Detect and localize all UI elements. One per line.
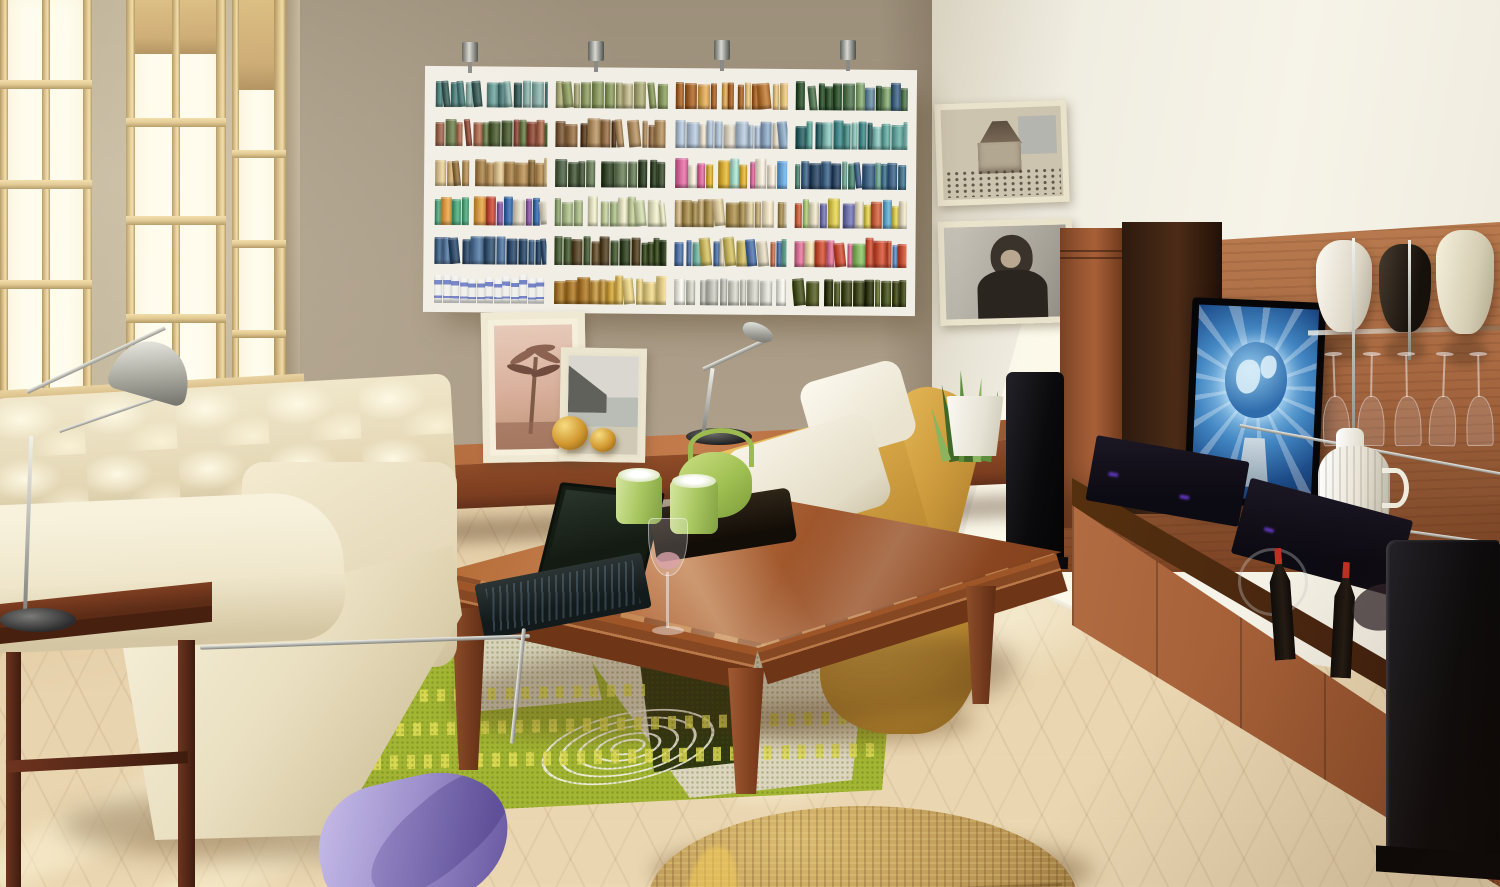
book-spine xyxy=(537,120,545,147)
book-spine xyxy=(443,275,451,304)
book-spine xyxy=(554,281,565,304)
book-spine xyxy=(615,119,625,148)
book-spine xyxy=(792,278,806,306)
book-spine xyxy=(628,162,638,187)
cabinet-groove xyxy=(1060,250,1124,252)
book-spine xyxy=(795,203,803,228)
book-spine xyxy=(706,164,714,188)
book-spine xyxy=(574,83,580,108)
book-spine xyxy=(581,82,592,108)
bookshelf-cell xyxy=(794,78,908,111)
tower-speaker-right xyxy=(1386,540,1500,870)
book-spine xyxy=(700,280,706,305)
bookshelf xyxy=(423,66,917,316)
book-spine xyxy=(601,161,614,187)
bookshelf-cell xyxy=(433,153,547,186)
book-spine xyxy=(641,242,647,265)
book-spine xyxy=(586,160,596,187)
book-spine xyxy=(513,120,519,147)
photo-sky xyxy=(1018,115,1058,154)
book-spine xyxy=(898,165,906,190)
bookshelf-cell xyxy=(672,273,786,306)
book-spine xyxy=(794,241,804,267)
book-spine xyxy=(460,278,468,304)
book-spine xyxy=(760,281,773,306)
photo-crowd xyxy=(945,167,1061,198)
bookshelf-cell xyxy=(673,155,787,188)
cream-vase xyxy=(1436,230,1494,334)
gold-apple-ornament xyxy=(590,428,616,452)
book-spine xyxy=(518,238,528,264)
book-spine xyxy=(621,278,635,305)
book-spine xyxy=(728,281,740,306)
book-spine xyxy=(535,163,544,186)
book-spine xyxy=(728,83,734,110)
book-spine xyxy=(815,122,822,150)
book-spine xyxy=(600,236,610,265)
book-spine xyxy=(718,161,730,188)
book-spine xyxy=(452,160,461,185)
book-spine xyxy=(457,123,463,147)
chrome-rod xyxy=(1408,240,1411,360)
gold-apple-ornament xyxy=(552,416,588,450)
book-spine xyxy=(633,82,645,109)
book-spine xyxy=(675,120,686,148)
book-spine xyxy=(520,120,527,147)
book-spine xyxy=(867,122,872,150)
book-spine xyxy=(623,84,633,109)
bookshelf-cell xyxy=(552,272,666,305)
book-spine xyxy=(619,239,630,266)
book-spine xyxy=(855,202,864,228)
picture-light-icon xyxy=(462,42,478,62)
book-spine xyxy=(904,122,908,151)
book-spine xyxy=(776,241,781,267)
book-spine xyxy=(858,122,867,150)
book-spine xyxy=(435,160,447,185)
book-spine xyxy=(627,120,642,148)
book-spine xyxy=(515,163,528,186)
bookshelf-cell xyxy=(793,156,907,189)
book-spine xyxy=(657,162,665,187)
book-spine xyxy=(566,124,578,148)
book-spine xyxy=(474,197,486,225)
book-spine xyxy=(864,280,874,307)
book-spine xyxy=(864,204,870,228)
book-spine xyxy=(591,242,599,266)
book-spine xyxy=(448,237,460,264)
book-spine xyxy=(739,202,745,228)
bookshelf-cell xyxy=(674,77,788,110)
book-spine xyxy=(525,199,532,225)
book-spine xyxy=(578,161,585,187)
bookshelf-cell xyxy=(792,274,906,307)
book-spine xyxy=(631,238,641,265)
book-spine xyxy=(722,82,728,109)
bookshelf-cell xyxy=(672,234,786,267)
book-spine xyxy=(614,161,627,187)
dark-vase xyxy=(1379,244,1431,332)
book-spine xyxy=(767,165,776,189)
bookshelf-cell xyxy=(673,116,787,149)
book-spine xyxy=(554,236,563,265)
book-spine xyxy=(456,81,465,107)
book-spine xyxy=(706,120,713,148)
desk-lamp-base xyxy=(0,608,76,632)
book-spine xyxy=(809,163,821,189)
globe-landmass xyxy=(1235,359,1260,394)
book-spine xyxy=(676,82,684,109)
book-spine xyxy=(706,279,718,305)
book-spine xyxy=(555,121,565,147)
book-spine xyxy=(684,83,697,109)
book-spine xyxy=(610,201,618,226)
book-spine xyxy=(643,281,655,305)
book-spine xyxy=(445,119,456,147)
hanging-wine-glass xyxy=(1428,352,1457,453)
book-spine xyxy=(818,83,824,110)
book-spine xyxy=(674,279,685,305)
book-spine xyxy=(528,159,535,186)
book-spine xyxy=(804,241,814,267)
book-spine xyxy=(604,82,615,108)
book-spine xyxy=(782,239,787,267)
book-spine xyxy=(555,159,567,186)
book-spine xyxy=(723,125,735,149)
book-spine xyxy=(647,82,657,109)
picture-light-icon xyxy=(588,41,604,61)
book-spine xyxy=(853,244,866,268)
book-spine xyxy=(571,239,582,265)
window-frame-shadow xyxy=(286,0,302,430)
book-spine xyxy=(814,240,826,267)
sepia-pavilion-photo xyxy=(934,100,1069,207)
book-spine xyxy=(656,276,666,305)
book-spine xyxy=(892,206,899,229)
book-spine xyxy=(756,240,770,266)
book-spine xyxy=(655,120,666,148)
book-spine xyxy=(744,83,751,110)
book-spine xyxy=(477,279,485,303)
book-spine xyxy=(577,277,590,304)
book-spine xyxy=(606,280,615,305)
rose-wine xyxy=(656,552,680,569)
book-spine xyxy=(886,241,891,268)
book-spine xyxy=(833,242,847,267)
book-spine xyxy=(522,81,531,108)
book-spine xyxy=(555,198,561,226)
book-spine xyxy=(842,162,848,189)
book-spine xyxy=(821,162,831,189)
book-spine xyxy=(536,278,544,304)
book-spine xyxy=(823,122,833,150)
book-spine xyxy=(590,280,598,304)
book-spine xyxy=(486,163,494,186)
book-spine xyxy=(583,236,591,265)
book-spine xyxy=(762,200,774,227)
book-spine xyxy=(601,201,609,226)
book-spine xyxy=(831,163,841,189)
book-spine xyxy=(581,123,588,147)
book-spine xyxy=(712,199,726,227)
book-spine xyxy=(502,277,510,304)
book-spine xyxy=(601,120,611,148)
plant-pot xyxy=(944,396,1006,456)
book-spine xyxy=(697,84,710,110)
book-spine xyxy=(891,82,901,111)
book-spine xyxy=(563,237,571,265)
book-spine xyxy=(726,202,739,227)
book-spine xyxy=(871,202,882,228)
bookshelf-cell xyxy=(553,193,667,226)
book-spine xyxy=(636,278,644,305)
book-spine xyxy=(899,201,907,229)
book-spine xyxy=(851,122,857,150)
book-spine xyxy=(713,242,719,267)
cabinet-groove xyxy=(1060,257,1124,259)
book-spine xyxy=(833,83,842,110)
book-spine xyxy=(882,199,891,228)
book-spine xyxy=(506,239,518,265)
bookshelf-cell xyxy=(793,117,907,150)
book-spine xyxy=(881,164,887,190)
green-mug xyxy=(616,474,662,524)
book-spine xyxy=(875,280,881,307)
book-spine xyxy=(722,237,735,267)
book-spine xyxy=(746,202,754,227)
book-spine xyxy=(833,121,844,150)
bookshelf-cell xyxy=(432,232,546,265)
book-spine xyxy=(501,121,513,147)
book-spine xyxy=(451,276,459,303)
book-spine xyxy=(866,238,873,268)
book-spine xyxy=(659,203,667,227)
book-spine xyxy=(642,121,647,148)
book-spine xyxy=(795,164,800,189)
picture-light-icon xyxy=(840,40,856,60)
book-spine xyxy=(618,198,628,226)
book-spine xyxy=(697,163,705,188)
book-spine xyxy=(473,122,483,146)
book-spine xyxy=(545,81,548,108)
book-spine xyxy=(599,280,606,305)
bookshelf-cell xyxy=(433,114,547,147)
book-spine xyxy=(843,203,855,228)
book-spine xyxy=(873,241,886,268)
book-spine xyxy=(898,244,907,268)
bookshelf-cell xyxy=(433,192,547,225)
book-spine xyxy=(698,199,704,227)
book-spine xyxy=(674,242,683,266)
book-spine xyxy=(881,281,892,307)
book-spine xyxy=(720,278,728,305)
book-spine xyxy=(682,200,692,227)
book-spine xyxy=(740,279,747,305)
book-spine xyxy=(730,159,739,188)
book-spine xyxy=(648,124,654,148)
bookshelf-cell xyxy=(432,271,546,304)
book-spine xyxy=(435,122,444,146)
book-spine xyxy=(654,237,660,265)
book-spine xyxy=(486,196,496,225)
book-spine xyxy=(464,119,473,146)
book-spine xyxy=(875,86,881,111)
book-spine xyxy=(901,88,907,111)
book-spine xyxy=(513,199,525,225)
book-spine xyxy=(616,82,623,109)
book-spine xyxy=(475,160,486,186)
jug-handle xyxy=(1382,468,1409,508)
book-spine xyxy=(834,281,841,306)
book-spine xyxy=(795,126,806,149)
book-spine xyxy=(463,239,471,264)
book-spine xyxy=(736,121,748,149)
book-spine xyxy=(873,127,882,151)
book-spine xyxy=(461,197,469,225)
book-spine xyxy=(494,279,502,303)
book-spine xyxy=(435,198,441,224)
book-spine xyxy=(692,201,698,227)
book-spine xyxy=(545,123,548,148)
hanging-wine-glass xyxy=(1465,352,1493,452)
book-spine xyxy=(538,201,547,225)
book-spine xyxy=(882,123,891,150)
book-spine xyxy=(441,197,452,225)
book-spine xyxy=(675,201,682,227)
book-spine xyxy=(484,237,496,265)
book-spine xyxy=(485,277,493,303)
book-spine xyxy=(841,280,853,307)
book-spine xyxy=(486,83,497,108)
book-spine xyxy=(828,199,841,229)
book-spine xyxy=(844,123,851,150)
book-spine xyxy=(588,197,598,226)
book-spine xyxy=(544,158,547,187)
book-spine xyxy=(842,83,855,110)
book-spine xyxy=(757,82,772,110)
book-spine xyxy=(754,126,760,149)
bookshelf-cell xyxy=(553,154,667,187)
book-spine xyxy=(801,161,809,189)
book-spine xyxy=(777,161,788,189)
book-spine xyxy=(796,81,805,110)
book-spine xyxy=(776,279,786,306)
book-spine xyxy=(686,122,699,148)
book-spine xyxy=(462,160,469,186)
book-spine xyxy=(561,202,573,226)
book-spine xyxy=(761,122,772,150)
book-spine xyxy=(824,279,834,306)
book-spine xyxy=(434,237,442,264)
book-spine xyxy=(638,160,647,188)
book-spine xyxy=(568,162,578,187)
book-spine xyxy=(887,163,897,189)
hanging-wine-glass xyxy=(1393,352,1421,452)
book-spine xyxy=(650,160,657,188)
book-spine xyxy=(633,200,647,227)
book-spine xyxy=(847,244,852,268)
book-spine xyxy=(748,124,753,149)
wine-glass-foot xyxy=(652,626,684,635)
book-spine xyxy=(452,199,461,224)
book-spine xyxy=(503,196,512,225)
bookshelf-cell xyxy=(673,195,787,228)
book-spine xyxy=(468,279,476,303)
book-spine xyxy=(803,199,809,228)
book-spine xyxy=(561,81,573,108)
book-spine xyxy=(875,163,881,189)
book-spine xyxy=(496,237,506,265)
book-spine xyxy=(658,84,668,109)
book-spine xyxy=(891,125,903,150)
book-spine xyxy=(471,236,484,264)
book-spine xyxy=(519,274,527,304)
book-spine xyxy=(610,241,619,266)
book-spine xyxy=(865,88,875,111)
book-spine xyxy=(714,122,723,149)
book-spine xyxy=(892,245,897,268)
book-spine xyxy=(750,161,755,188)
book-spine xyxy=(504,162,515,186)
book-spine xyxy=(862,163,875,189)
book-spine xyxy=(899,280,906,307)
book-spine xyxy=(853,280,864,307)
book-spine xyxy=(565,280,577,304)
book-spine xyxy=(770,242,776,267)
window-1 xyxy=(0,0,92,420)
book-spine xyxy=(648,242,654,266)
book-spine xyxy=(514,82,522,107)
rattan-pouf xyxy=(648,806,1078,887)
book-spine xyxy=(855,82,864,111)
book-spine xyxy=(747,280,760,306)
book-spine xyxy=(739,164,747,188)
book-spine xyxy=(503,81,513,108)
book-spine xyxy=(528,239,535,264)
book-spine xyxy=(825,86,833,111)
book-spine xyxy=(675,159,688,188)
bookshelf-cell xyxy=(792,235,906,268)
book-spine xyxy=(588,118,601,148)
book-spine xyxy=(778,202,784,228)
book-spine xyxy=(755,159,766,189)
bookshelf-cell xyxy=(434,75,548,108)
book-spine xyxy=(699,237,713,266)
living-room-scene xyxy=(0,0,1500,887)
book-spine xyxy=(488,122,500,147)
book-spine xyxy=(737,85,744,110)
book-spine xyxy=(496,202,503,225)
bookshelf-cell xyxy=(552,233,666,266)
bookshelf-cell xyxy=(554,76,668,109)
tower-speaker-left xyxy=(1006,372,1064,564)
book-spine xyxy=(511,279,519,304)
portrait-body xyxy=(977,269,1049,319)
book-spine xyxy=(809,202,819,228)
book-spine xyxy=(772,84,779,110)
book-spine xyxy=(592,82,604,109)
book-spine xyxy=(528,278,536,304)
bookshelf-grid xyxy=(432,75,908,307)
globe-landmass xyxy=(1260,356,1277,380)
white-vase xyxy=(1316,240,1372,332)
book-spine xyxy=(686,240,692,266)
book-spine xyxy=(777,121,788,149)
book-spine xyxy=(892,281,899,307)
book-spine xyxy=(527,122,537,147)
book-spine xyxy=(754,202,761,227)
bookshelf-cell xyxy=(553,115,667,148)
